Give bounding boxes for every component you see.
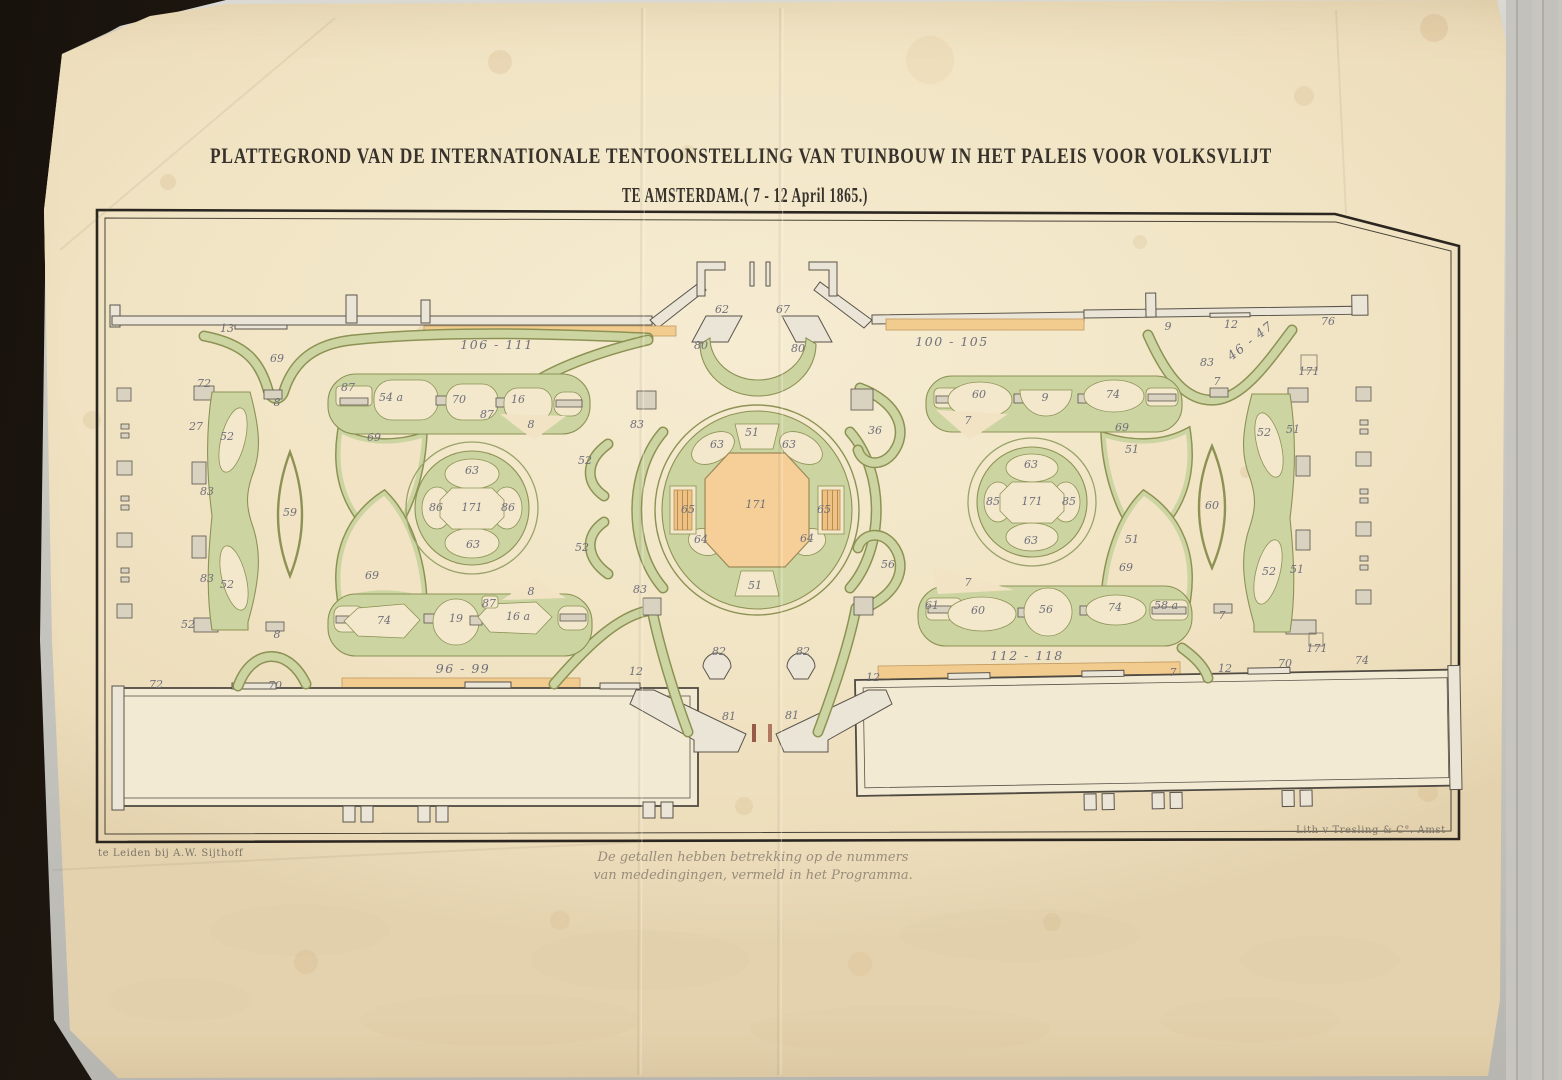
plan-number: 52	[575, 541, 589, 554]
plan-number: 106 - 111	[460, 337, 533, 352]
plan-number: 171	[1307, 642, 1328, 655]
plan-number: 83	[630, 418, 644, 431]
plan-number: 81	[785, 709, 799, 722]
plan-number: 112 - 118	[990, 648, 1063, 663]
plan-number: 63	[466, 538, 480, 551]
plan-number: 7	[965, 414, 972, 427]
plan-number: 52	[1257, 426, 1271, 439]
plan-number: 82	[796, 645, 810, 658]
plate-title-line2: TE AMSTERDAM.( 7 - 12 April 1865.)	[622, 183, 868, 207]
plan-number: 16	[511, 393, 525, 406]
plan-number: 69	[1119, 561, 1133, 574]
plan-number: 83	[200, 485, 214, 498]
plan-number: 65	[817, 503, 831, 516]
plan-number: 83	[1200, 356, 1214, 369]
plan-number: 69	[365, 569, 379, 582]
plan-number: 52	[1262, 565, 1276, 578]
plan-number: 12	[1218, 662, 1232, 675]
plan-number: 74	[1106, 388, 1120, 401]
plan-drawing: PLATTEGROND VAN DE INTERNATIONALE TENTOO…	[0, 0, 1562, 1080]
plan-number: 70	[1278, 657, 1292, 670]
plan-number: 83	[633, 583, 647, 596]
plan-number: 171	[1022, 495, 1043, 508]
plan-number: 60	[972, 388, 986, 401]
plan-number: 70	[452, 393, 466, 406]
plan-number: 7	[965, 576, 972, 589]
plan-number: 85	[986, 495, 1000, 508]
plan-number: 8	[528, 585, 535, 598]
plan-number: 8	[528, 418, 535, 431]
plan-number: 171	[746, 498, 767, 511]
verso-show-through	[110, 904, 1400, 1054]
plan-number: 7	[1219, 609, 1226, 622]
plan-number: 70	[268, 679, 282, 692]
plan-number: 96 - 99	[436, 661, 490, 676]
plan-number: 72	[149, 678, 163, 691]
plan-number: 56	[881, 558, 895, 571]
plan-number: 69	[270, 352, 284, 365]
north-entrance	[650, 262, 872, 396]
plan-number: 9	[1165, 320, 1172, 333]
plan-number: 58 a	[1154, 599, 1178, 612]
plan-number: 8	[274, 396, 281, 409]
plan-number: 74	[1355, 654, 1369, 667]
plan-number: 76	[1321, 315, 1335, 328]
plan-number: 27	[188, 420, 203, 433]
plan-number: 69	[367, 431, 381, 444]
plan-number: 52	[220, 578, 234, 591]
plan-number: 85	[1062, 495, 1076, 508]
plan-number: 74	[1108, 601, 1122, 614]
plan-number: 100 - 105	[915, 334, 988, 349]
plan-number: 54 a	[379, 391, 403, 404]
plan-number: 87	[341, 381, 355, 394]
plan-number: 60	[1205, 499, 1219, 512]
plan-number: 51	[1286, 423, 1300, 436]
plan-number: 86	[429, 501, 443, 514]
plan-number: 12	[866, 671, 880, 684]
south-building-east	[855, 664, 1462, 814]
plan-number: 171	[1299, 365, 1320, 378]
plan-number: 62	[715, 303, 729, 316]
plan-number: 80	[694, 339, 708, 352]
plan-number: 80	[791, 342, 805, 355]
plan-number: 67	[776, 303, 790, 316]
plan-number: 69	[1115, 421, 1129, 434]
plan-number: 65	[681, 503, 695, 516]
plan-number: 64	[694, 533, 708, 546]
plan-number: 56	[1039, 603, 1053, 616]
plan-number: 19	[449, 612, 463, 625]
plan-number: 63	[1024, 534, 1038, 547]
plan-number: 59	[283, 506, 297, 519]
plan-number: 7	[1214, 375, 1221, 388]
plan-number: 61	[925, 599, 939, 612]
plan-number: 64	[800, 532, 814, 545]
plan-number: 12	[629, 665, 643, 678]
plan-number: 72	[197, 377, 211, 390]
plan-number: 74	[377, 614, 391, 627]
plan-number: 9	[1042, 391, 1049, 404]
plan-number: 12	[1224, 318, 1238, 331]
plan-number: 63	[1024, 458, 1038, 471]
plan-number: 63	[782, 438, 796, 451]
plate-note-line1: De getallen hebben betrekking op de numm…	[597, 850, 909, 865]
plan-number: 86	[501, 501, 515, 514]
plan-number: 60	[971, 604, 985, 617]
imprint-lithographer: Lith v Tresling & C°. Amst	[1296, 825, 1446, 836]
plan-number: 36	[868, 424, 882, 437]
plate-note-line2: van mededingingen, vermeld in het Progra…	[593, 868, 913, 883]
plan-number: 16 a	[506, 610, 530, 623]
plan-number: 87	[482, 597, 496, 610]
west-parterre-band	[192, 386, 284, 632]
plan-number: 51	[745, 426, 759, 439]
imprint-publisher: te Leiden bij A.W. Sijthoff	[98, 848, 244, 859]
plan-number: 171	[462, 501, 483, 514]
plan-number: 83	[200, 572, 214, 585]
plan-number: 63	[710, 438, 724, 451]
plan-number: 51	[1125, 443, 1139, 456]
south-building-west	[112, 682, 698, 822]
plan-number: 52	[181, 618, 195, 631]
plan-number: 51	[748, 579, 762, 592]
plan-number: 87	[480, 408, 494, 421]
plate-title-line1: PLATTEGROND VAN DE INTERNATIONALE TENTOO…	[210, 143, 1272, 168]
plan-number: 52	[220, 430, 234, 443]
plan-number: 52	[578, 454, 592, 467]
plan-number: 13	[220, 322, 234, 335]
plan-number: 82	[712, 645, 726, 658]
plan-number: 51	[1125, 533, 1139, 546]
photo-scene: PLATTEGROND VAN DE INTERNATIONALE TENTOO…	[0, 0, 1562, 1080]
plan-number: 51	[1290, 563, 1304, 576]
plan-number: 8	[274, 628, 281, 641]
plan-number: 63	[465, 464, 479, 477]
northeast-chain	[926, 376, 1182, 440]
plan-number: 7	[1170, 666, 1177, 679]
north-wall-west	[110, 295, 652, 329]
plan-number: 81	[722, 710, 736, 723]
